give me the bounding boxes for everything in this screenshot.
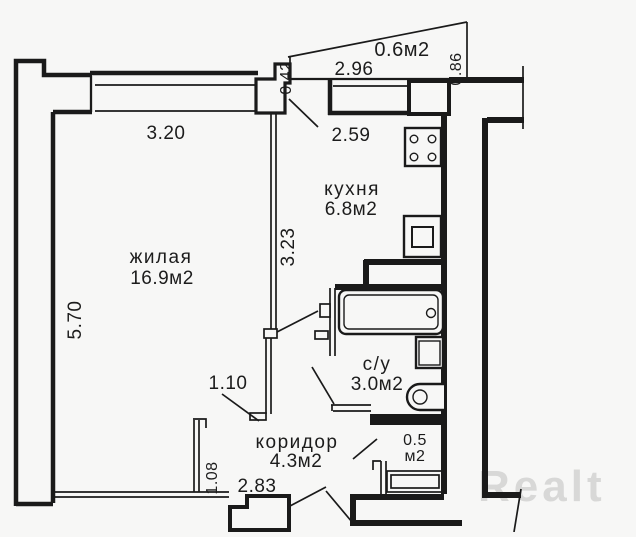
dim-balcony-left: 0.42: [278, 61, 295, 94]
living-room-area: 16.9м2: [130, 268, 194, 289]
dim-balcony-right: 0.86: [448, 52, 465, 85]
corridor-area: 4.3м2: [270, 451, 323, 472]
bathroom-area: 3.0м2: [351, 374, 404, 395]
balcony-area: 0.6м2: [374, 39, 429, 61]
stove-icon: [405, 128, 441, 166]
dim-balcony-width: 2.96: [335, 59, 374, 80]
dim-corridor-left: 1.08: [204, 461, 221, 494]
dim-living-top: 3.20: [147, 123, 186, 144]
dim-kitchen-left: 3.23: [278, 228, 299, 267]
dim-living-door: 1.10: [209, 373, 248, 394]
corridor-label: коридор: [256, 432, 339, 453]
bathroom-closet-wall-band: [370, 414, 444, 425]
toilet-icon: [407, 384, 444, 410]
kitchen-window-right-pier: [409, 81, 449, 114]
dim-living-left: 5.70: [65, 301, 86, 340]
floor-plan: Realt: [0, 0, 636, 532]
floor-plan-svg: Realt: [0, 0, 636, 532]
closet-area-line1: 0.5: [403, 432, 427, 449]
kitchen-door-frame: [264, 329, 277, 338]
dim-kitchen-top: 2.59: [332, 125, 371, 146]
bathroom-label: с/у: [363, 354, 392, 375]
dim-bottom: 2.83: [238, 476, 277, 497]
bathroom-wall-duct-tab: [320, 304, 330, 317]
closet-area-line2: м2: [405, 448, 426, 465]
realt-watermark: Realt: [478, 462, 606, 511]
kitchen-area: 6.8м2: [325, 199, 378, 220]
bathroom-sink-icon: [416, 337, 443, 368]
bathtub-icon: [339, 290, 443, 334]
bathroom-doorframe-tab: [315, 331, 328, 339]
living-room-label: жилая: [130, 247, 193, 268]
kitchen-sink-icon: [404, 216, 441, 257]
kitchen-label: кухня: [324, 179, 380, 200]
